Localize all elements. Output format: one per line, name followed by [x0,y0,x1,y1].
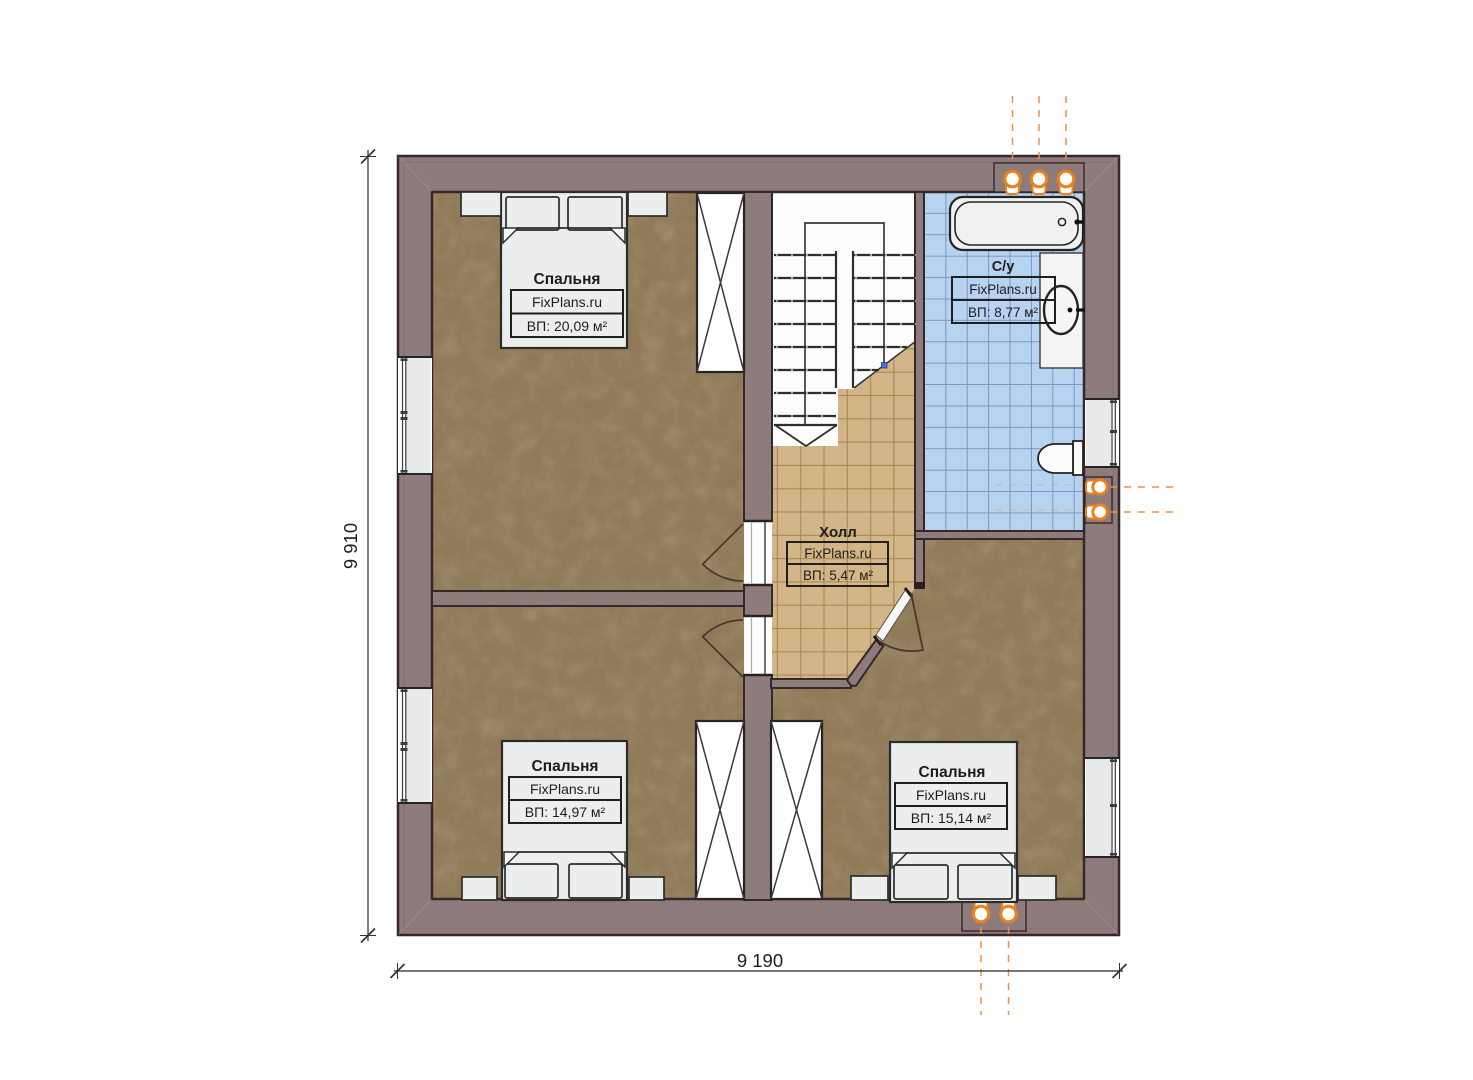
svg-text:FixPlans.ru: FixPlans.ru [969,282,1037,297]
svg-text:Спальня: Спальня [532,758,599,775]
svg-text:ВП: 14,97 м²: ВП: 14,97 м² [525,804,606,820]
svg-text:Холл: Холл [819,524,857,541]
svg-text:Спальня: Спальня [919,764,986,781]
svg-text:FixPlans.ru: FixPlans.ru [916,787,986,803]
svg-text:FixPlans.ru: FixPlans.ru [530,781,600,797]
svg-text:ВП: 15,14 м²: ВП: 15,14 м² [911,810,992,826]
svg-text:ВП: 20,09 м²: ВП: 20,09 м² [527,318,608,334]
svg-text:ВП: 8,77 м²: ВП: 8,77 м² [968,305,1039,320]
svg-text:Спальня: Спальня [534,271,601,288]
svg-text:ВП: 5,47 м²: ВП: 5,47 м² [803,568,874,583]
svg-text:FixPlans.ru: FixPlans.ru [804,546,872,561]
svg-text:FixPlans.ru: FixPlans.ru [532,294,602,310]
svg-text:С/у: С/у [992,259,1015,275]
svg-text:9 910: 9 910 [340,523,361,569]
svg-text:9 190: 9 190 [737,950,783,971]
